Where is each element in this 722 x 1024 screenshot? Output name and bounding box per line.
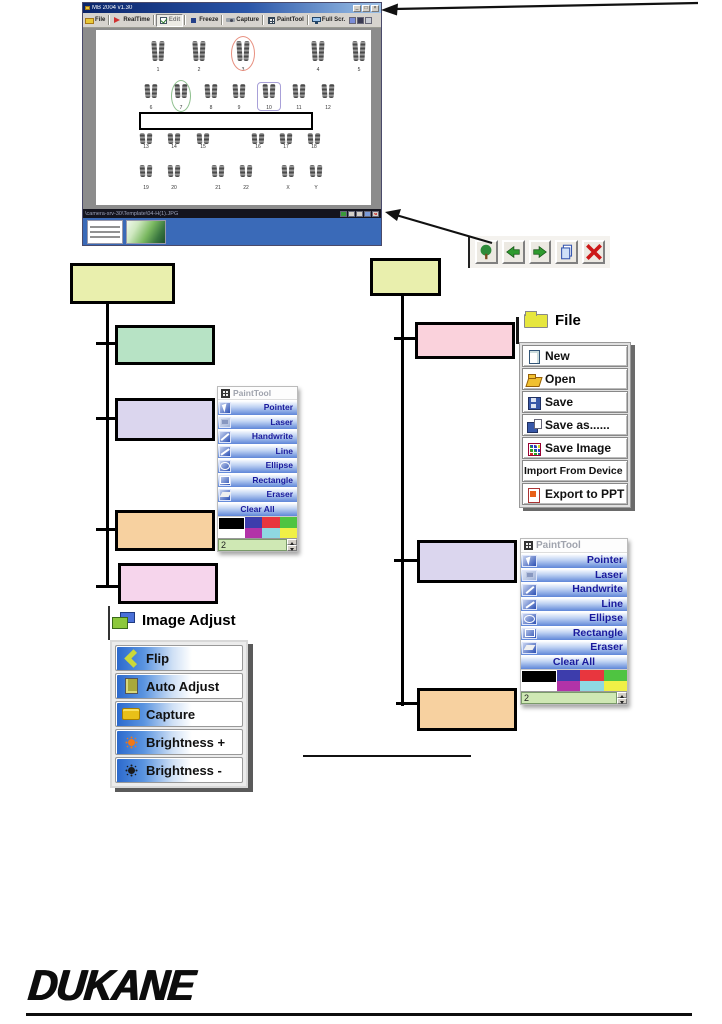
maximize-button[interactable]: □ — [362, 5, 370, 12]
painttool-tool-label: Eraser — [538, 641, 627, 655]
spin-down-icon[interactable] — [617, 698, 627, 704]
toolbar-item-painttool[interactable]: PaintTool — [265, 14, 306, 27]
eraser-icon — [219, 489, 231, 501]
painttool-palette: PaintTool PointerLaserHandwriteLineEllip… — [217, 386, 298, 552]
toolbar-item-realtime[interactable]: RealTime — [111, 14, 152, 27]
line-width-stepper: 2 — [521, 691, 627, 704]
chromosome-glyph — [161, 133, 187, 144]
toolbar-item-label: Freeze — [199, 17, 218, 23]
canvas-area: 12345678910111213141516171819202122XY — [83, 28, 381, 209]
chromosome-pair-3: 3 — [230, 41, 256, 73]
chromosome-label: 16 — [245, 145, 271, 150]
previous-button[interactable] — [502, 240, 525, 264]
file-menu-item-save-image[interactable]: Save Image — [522, 437, 628, 459]
painttool-tool-label: Laser — [232, 416, 297, 430]
painttool-tool-label: Pointer — [232, 401, 297, 415]
chromosome-pair-10: 10 — [256, 84, 282, 111]
chromosome-label: 6 — [138, 106, 164, 111]
copy-button[interactable] — [555, 240, 578, 264]
chromosome-pair-9: 9 — [226, 84, 252, 111]
monitor-icon — [312, 16, 321, 25]
color-swatch[interactable] — [580, 670, 603, 681]
flowchart-connector — [396, 702, 417, 705]
chromosome-glyph — [301, 133, 327, 144]
toolbar-item-label: Full Scr. — [322, 17, 345, 23]
toolbar-separator — [184, 15, 186, 25]
chromosome-glyph — [305, 41, 331, 61]
image-adjust-item-flip[interactable]: Flip — [115, 645, 243, 671]
color-swatch[interactable] — [280, 528, 297, 539]
chromosome-glyph — [233, 165, 259, 177]
line-icon — [522, 599, 537, 611]
image-adjust-title: Image Adjust — [142, 612, 236, 629]
palette-grid — [245, 517, 297, 538]
chromosome-glyph — [205, 165, 231, 177]
title-bar: MB 2004 v1.30 _ □ × — [83, 3, 381, 13]
chromosome-glyph — [315, 84, 341, 98]
flowchart-connector — [394, 337, 415, 340]
painttool-line[interactable]: Line — [218, 444, 297, 459]
color-swatch[interactable] — [280, 517, 297, 528]
chromosome-label: 3 — [230, 68, 256, 73]
line-width-value[interactable]: 2 — [218, 539, 287, 551]
filmstrip — [83, 218, 381, 245]
floppy-page-icon — [526, 418, 541, 433]
painttool-tool-label: Ellipse — [232, 459, 297, 473]
window-controls: _ □ × — [353, 5, 379, 12]
image-adjust-item-auto-adjust[interactable]: Auto Adjust — [115, 673, 243, 699]
sun-dim-icon — [116, 767, 146, 774]
karyotype-thumbnail[interactable] — [87, 220, 123, 244]
file-menu-item-label: Save — [545, 395, 573, 409]
chromosome-label: 1 — [145, 68, 171, 73]
flowchart-connector — [96, 342, 116, 345]
chromosome-label: 12 — [315, 106, 341, 111]
freeze-icon — [189, 16, 198, 25]
chromosome-glyph — [303, 165, 329, 177]
window-title: MB 2004 v1.30 — [92, 5, 351, 11]
file-menu-item-import-from-device[interactable]: Import From Device — [522, 460, 628, 482]
file-menu-item-label: Export to PPT — [545, 487, 624, 501]
display-icon[interactable] — [349, 17, 356, 24]
painttool-tools: PointerLaserHandwriteLineEllipseRectangl… — [521, 553, 627, 669]
app-icon — [85, 6, 90, 10]
painttool-grid-icon — [221, 389, 230, 398]
flowchart-connector — [96, 585, 119, 588]
toolbar-item-edit[interactable]: Edit — [156, 14, 183, 27]
palette-grid — [557, 670, 627, 691]
separator-line — [303, 755, 471, 757]
app-toolbar: FileRealTimeEditFreezeCapturePaintToolFu… — [83, 13, 381, 28]
toolbar-item-freeze[interactable]: Freeze — [187, 14, 220, 27]
painttool-titlebar: PaintTool — [218, 387, 297, 400]
toolbar-item-label: RealTime — [123, 17, 150, 23]
chromosome-label: 4 — [305, 68, 331, 73]
color-swatch-black[interactable] — [219, 518, 244, 529]
painttool-palette: PaintTool PointerLaserHandwriteLineEllip… — [520, 538, 628, 705]
image-adjust-item-brightness-[interactable]: Brightness + — [115, 729, 243, 755]
floppy-icon — [526, 395, 541, 410]
painttool-ellipse[interactable]: Ellipse — [521, 611, 627, 626]
color-swatch-black[interactable] — [522, 671, 556, 682]
rectangle-icon — [219, 475, 231, 487]
image-adjust-menu: FlipAuto AdjustCaptureBrightness +Bright… — [110, 640, 248, 788]
file-menu-item-export-to-ppt[interactable]: Export to PPT — [522, 483, 628, 505]
chromosome-pair-21: 21 — [205, 165, 231, 191]
pointer-icon — [522, 555, 537, 567]
painttool-title: PaintTool — [536, 540, 581, 551]
grid-icon — [267, 16, 276, 25]
chromosome-glyph — [273, 133, 299, 144]
file-menu: NewOpenSaveSave as......Save ImageImport… — [519, 342, 631, 508]
rectangle-icon — [522, 628, 537, 640]
chromosome-glyph — [256, 84, 282, 98]
painttool-tool-label: Line — [232, 445, 297, 459]
next-button[interactable] — [529, 240, 552, 264]
chromosome-glyph — [186, 41, 212, 61]
chromosome-label: 14 — [161, 145, 187, 150]
settings-icon[interactable] — [357, 17, 364, 24]
file-menu-item-save[interactable]: Save — [522, 391, 628, 413]
chromosome-pair-22: 22 — [233, 165, 259, 191]
painttool-handwrite[interactable]: Handwrite — [218, 429, 297, 444]
ellipse-icon — [522, 613, 537, 625]
color-swatch[interactable] — [557, 670, 580, 681]
painttool-title: PaintTool — [233, 388, 271, 398]
painttool-tools: PointerLaserHandwriteLineEllipseRectangl… — [218, 400, 297, 516]
image-adjust-item-label: Capture — [146, 707, 195, 722]
chromosome-pair-5: 5 — [346, 41, 372, 73]
painttool-laser[interactable]: Laser — [218, 415, 297, 430]
file-menu-item-save-as-[interactable]: Save as...... — [522, 414, 628, 436]
chromosome-pair-19: 19 — [133, 165, 159, 191]
color-swatch[interactable] — [580, 681, 603, 692]
toolbar-item-label: Capture — [236, 17, 259, 23]
black-rect-annotation — [139, 112, 313, 130]
status-bar: \camera-srv-30\Template\04-H(1).JPG — [83, 209, 381, 218]
color-swatch[interactable] — [262, 517, 279, 528]
manual-page: MB 2004 v1.30 _ □ × FileRealTimeEditFree… — [0, 0, 722, 1024]
flowchart-right-box-1 — [415, 322, 515, 359]
flowchart-left-box-1 — [115, 325, 215, 365]
color-swatch[interactable] — [604, 681, 627, 692]
close-icon[interactable] — [372, 211, 379, 217]
chromosome-pair-13: 13 — [133, 133, 159, 150]
minimize-button[interactable]: _ — [353, 5, 361, 12]
chromosome-label: 22 — [233, 186, 259, 191]
insert-image-button[interactable] — [475, 240, 498, 264]
palette-left-column — [218, 517, 245, 538]
camera-icon — [226, 16, 235, 25]
chromosome-label: 2 — [186, 68, 212, 73]
flowchart-right-trunk — [401, 296, 404, 706]
painttool-pointer[interactable]: Pointer — [218, 400, 297, 415]
ellipse-icon — [219, 460, 231, 472]
image-adjust-item-capture[interactable]: Capture — [115, 701, 243, 727]
painttool-tool-label: Eraser — [232, 488, 297, 502]
painttool-tool-label: Clear All — [218, 503, 297, 517]
line-width-value[interactable]: 2 — [521, 692, 617, 704]
flowchart-left-box-3 — [115, 510, 215, 551]
file-menu-item-label: Open — [545, 372, 576, 386]
status-file-path: \camera-srv-30\Template\04-H(1).JPG — [85, 211, 178, 217]
painttool-rectangle[interactable]: Rectangle — [218, 473, 297, 488]
previous-icon[interactable] — [348, 211, 355, 217]
file-menu-title: File — [555, 312, 581, 329]
color-grid-icon — [526, 441, 541, 456]
toolbar-separator — [153, 15, 155, 25]
chromosome-label: 15 — [190, 145, 216, 150]
next-icon[interactable] — [356, 211, 363, 217]
file-menu-item-label: Save as...... — [545, 418, 610, 432]
toolbar-separator — [108, 15, 110, 25]
laser-icon — [219, 417, 231, 429]
open-folder-icon — [526, 372, 541, 387]
dukane-logo: DUKANE — [26, 962, 196, 1011]
chromosome-glyph — [145, 41, 171, 61]
flowchart-right-box-3 — [417, 688, 517, 731]
painttool-eraser[interactable]: Eraser — [218, 487, 297, 502]
painttool-titlebar: PaintTool — [521, 539, 627, 553]
new-page-icon — [526, 349, 541, 364]
color-palette — [521, 669, 627, 691]
flowchart-left-box-2 — [115, 398, 215, 441]
toolbar-item-label: PaintTool — [277, 17, 304, 23]
handwrite-icon — [522, 584, 537, 596]
painttool-tool-label: Line — [538, 598, 627, 612]
chromosome-pair-20: 20 — [161, 165, 187, 191]
color-swatch[interactable] — [245, 517, 262, 528]
image-adjust-item-label: Brightness + — [146, 735, 225, 750]
delete-x-icon — [585, 243, 603, 261]
chromosome-pair-7: 7 — [168, 84, 194, 111]
status-bar-buttons — [340, 211, 379, 217]
image-adjust-header: Image Adjust — [112, 612, 236, 629]
sun-bright-icon — [116, 739, 146, 746]
line-width-stepper: 2 — [218, 538, 297, 551]
flowchart-right-root — [370, 258, 441, 296]
eraser-icon — [522, 642, 537, 654]
painttool-tool-label: Rectangle — [232, 474, 297, 488]
copy-icon[interactable] — [364, 211, 371, 217]
toolbar-callout-arrow — [381, 3, 698, 16]
clipboard-icon — [116, 678, 146, 694]
image-adjust-icon — [112, 612, 135, 629]
flowchart-connector — [96, 528, 116, 531]
chromosome-glyph — [346, 41, 372, 61]
chromosome-label: 13 — [133, 145, 159, 150]
chromosome-pair-Y: Y — [303, 165, 329, 191]
chromosome-pair-11: 11 — [286, 84, 312, 111]
file-menu-items: NewOpenSaveSave as......Save ImageImport… — [522, 345, 628, 505]
chromosome-glyph — [230, 41, 256, 61]
painttool-tool-label: Clear All — [521, 656, 627, 670]
image-adjust-item-label: Auto Adjust — [146, 679, 219, 694]
chromosome-pair-16: 16 — [245, 133, 271, 150]
flowchart-left-trunk — [106, 303, 109, 588]
toolbar-item-fullscr[interactable]: Full Scr. — [310, 14, 347, 27]
image-adjust-connector — [108, 606, 110, 640]
color-swatch[interactable] — [557, 681, 580, 692]
realtime-icon — [113, 16, 122, 25]
chromosome-label: 18 — [301, 145, 327, 150]
chromosome-label: 21 — [205, 186, 231, 191]
chromosome-glyph — [226, 84, 252, 98]
flip-chevron-icon — [116, 652, 146, 665]
toolbar-item-label: File — [95, 17, 105, 23]
image-adjust-item-label: Brightness - — [146, 763, 222, 778]
karyotype-canvas: 12345678910111213141516171819202122XY — [96, 30, 371, 205]
chromosome-pair-17: 17 — [273, 133, 299, 150]
image-adjust-item-brightness-[interactable]: Brightness - — [115, 757, 243, 783]
flowchart-connector — [96, 417, 116, 420]
insert-image-icon[interactable] — [340, 211, 347, 217]
toolbar-separator — [262, 15, 264, 25]
painttool-line[interactable]: Line — [521, 597, 627, 612]
image-insert-icon — [477, 243, 495, 261]
file-menu-item-label: New — [545, 349, 570, 363]
chromosome-label: 20 — [161, 186, 187, 191]
painttool-grid-icon — [524, 541, 533, 550]
chromosome-pair-6: 6 — [138, 84, 164, 111]
chromosome-glyph — [161, 165, 187, 177]
chromosome-label: 10 — [256, 106, 282, 111]
arrow-left-icon — [504, 243, 522, 261]
chromosome-label: 19 — [133, 186, 159, 191]
chromosome-label: 17 — [273, 145, 299, 150]
app-toolbar-items: FileRealTimeEditFreezeCapturePaintToolFu… — [83, 13, 381, 27]
chromosome-pair-14: 14 — [161, 133, 187, 150]
chromosome-glyph — [133, 165, 159, 177]
line-icon — [219, 446, 231, 458]
ppt-doc-icon — [526, 487, 541, 502]
delete-button[interactable] — [582, 240, 605, 264]
color-swatch[interactable] — [245, 528, 262, 539]
chromosome-glyph — [286, 84, 312, 98]
painttool-pointer[interactable]: Pointer — [521, 553, 627, 568]
painttool-laser[interactable]: Laser — [521, 568, 627, 583]
flowchart-connector — [394, 559, 417, 562]
spin-down-icon[interactable] — [287, 545, 297, 551]
file-menu-item-label: Save Image — [545, 441, 611, 455]
painttool-eraser[interactable]: Eraser — [521, 640, 627, 655]
painttool-ellipse[interactable]: Ellipse — [218, 458, 297, 473]
chromosome-pair-X: X — [275, 165, 301, 191]
chromosome-label: 5 — [346, 68, 372, 73]
chromosome-glyph — [198, 84, 224, 98]
nav-icon-strip — [468, 236, 610, 268]
painttool-tool-label: Handwrite — [538, 583, 627, 597]
footer-rule — [26, 1013, 692, 1016]
chromosome-glyph — [245, 133, 271, 144]
chromosome-pair-12: 12 — [315, 84, 341, 111]
chromosome-glyph — [190, 133, 216, 144]
image-adjust-item-label: Flip — [146, 651, 169, 666]
toolbar-item-capture[interactable]: Capture — [224, 14, 261, 27]
chromosome-pair-8: 8 — [198, 84, 224, 111]
file-menu-item-new[interactable]: New — [522, 345, 628, 367]
toolbar-item-file[interactable]: File — [83, 14, 107, 27]
painttool-clear-all[interactable]: Clear All — [521, 655, 627, 670]
painttool-tool-label: Laser — [538, 569, 627, 583]
chromosome-pair-18: 18 — [301, 133, 327, 150]
toolbar-extra-icons — [349, 17, 372, 24]
app-window: MB 2004 v1.30 _ □ × FileRealTimeEditFree… — [82, 2, 382, 246]
file-menu-header: File — [524, 312, 581, 329]
chromosome-glyph — [275, 165, 301, 177]
chromosome-pair-4: 4 — [305, 41, 331, 73]
painttool-rectangle[interactable]: Rectangle — [521, 626, 627, 641]
file-menu-item-label: Import From Device — [524, 465, 623, 477]
camera-icon — [116, 708, 146, 720]
chromosome-glyph — [168, 84, 194, 98]
chromosome-label: 11 — [286, 106, 312, 111]
chromosome-label: X — [275, 186, 301, 191]
flowchart-left-box-4 — [118, 563, 218, 604]
folder-icon — [524, 314, 548, 328]
flowchart-left-root — [70, 263, 175, 304]
toolbar-separator — [307, 15, 309, 25]
chromosome-pair-2: 2 — [186, 41, 212, 73]
image-adjust-items: FlipAuto AdjustCaptureBrightness +Bright… — [115, 645, 243, 783]
color-swatch[interactable] — [262, 528, 279, 539]
file-menu-left-bar — [516, 317, 519, 344]
edit-icon — [159, 16, 168, 25]
plant-thumbnail[interactable] — [126, 220, 166, 244]
chromosome-label: Y — [303, 186, 329, 191]
toolbar-separator — [221, 15, 223, 25]
color-palette — [218, 516, 297, 538]
handwrite-icon — [219, 431, 231, 443]
panel-icon[interactable] — [365, 17, 372, 24]
chromosome-glyph — [133, 133, 159, 144]
painttool-tool-label: Rectangle — [538, 627, 627, 641]
arrow-right-icon — [531, 243, 549, 261]
close-button[interactable]: × — [371, 5, 379, 12]
painttool-tool-label: Ellipse — [538, 612, 627, 626]
painttool-clear-all[interactable]: Clear All — [218, 502, 297, 517]
painttool-tool-label: Handwrite — [232, 430, 297, 444]
laser-icon — [522, 570, 537, 582]
palette-left-column — [521, 670, 557, 691]
toolbar-item-label: Edit — [169, 17, 180, 23]
pointer-icon — [219, 402, 231, 414]
copy-icon — [558, 243, 576, 261]
file-menu-item-open[interactable]: Open — [522, 368, 628, 390]
chromosome-pair-1: 1 — [145, 41, 171, 73]
chromosome-pair-15: 15 — [190, 133, 216, 150]
chromosome-glyph — [138, 84, 164, 98]
chromosome-label: 9 — [226, 106, 252, 111]
chromosome-label: 7 — [168, 106, 194, 111]
flowchart-right-box-2 — [417, 540, 517, 583]
folder-icon — [85, 16, 94, 25]
painttool-tool-label: Pointer — [538, 554, 627, 568]
chromosome-label: 8 — [198, 106, 224, 111]
color-swatch[interactable] — [604, 670, 627, 681]
painttool-handwrite[interactable]: Handwrite — [521, 582, 627, 597]
